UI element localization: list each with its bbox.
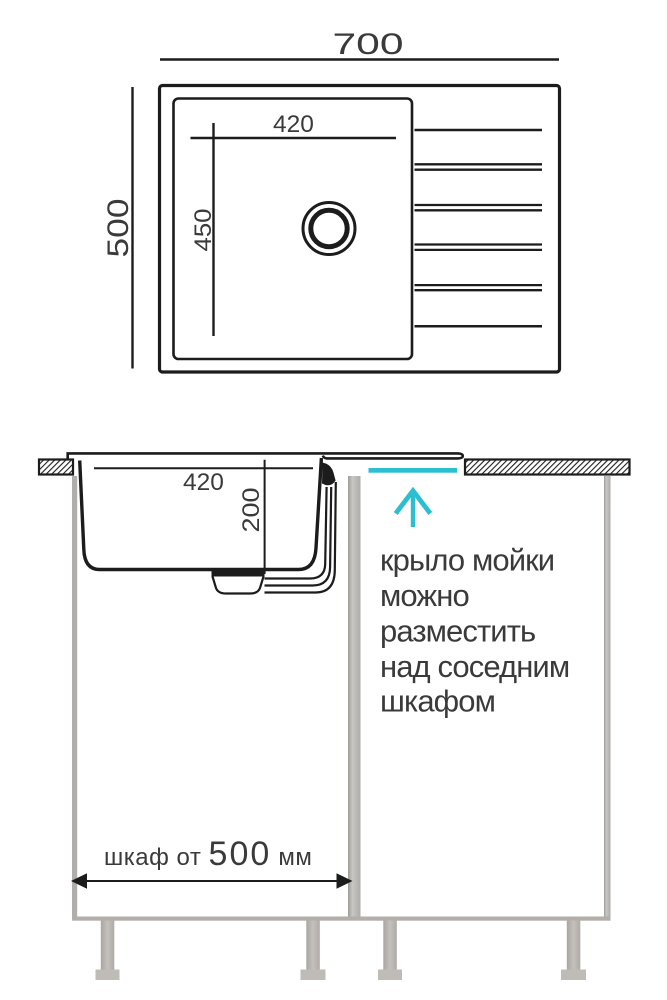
svg-text:крыло мойки: крыло мойки bbox=[380, 542, 554, 577]
svg-text:420: 420 bbox=[183, 469, 224, 496]
svg-text:разместить: разместить bbox=[380, 614, 535, 649]
svg-text:420: 420 bbox=[273, 111, 314, 138]
svg-text:500: 500 bbox=[102, 199, 135, 258]
svg-text:шкафом: шкафом bbox=[380, 684, 495, 719]
svg-text:200: 200 bbox=[238, 488, 265, 533]
svg-text:450: 450 bbox=[190, 209, 217, 252]
svg-text:можно: можно bbox=[380, 578, 469, 613]
svg-text:700: 700 bbox=[333, 28, 404, 61]
svg-text:над соседним: над соседним bbox=[380, 649, 569, 684]
